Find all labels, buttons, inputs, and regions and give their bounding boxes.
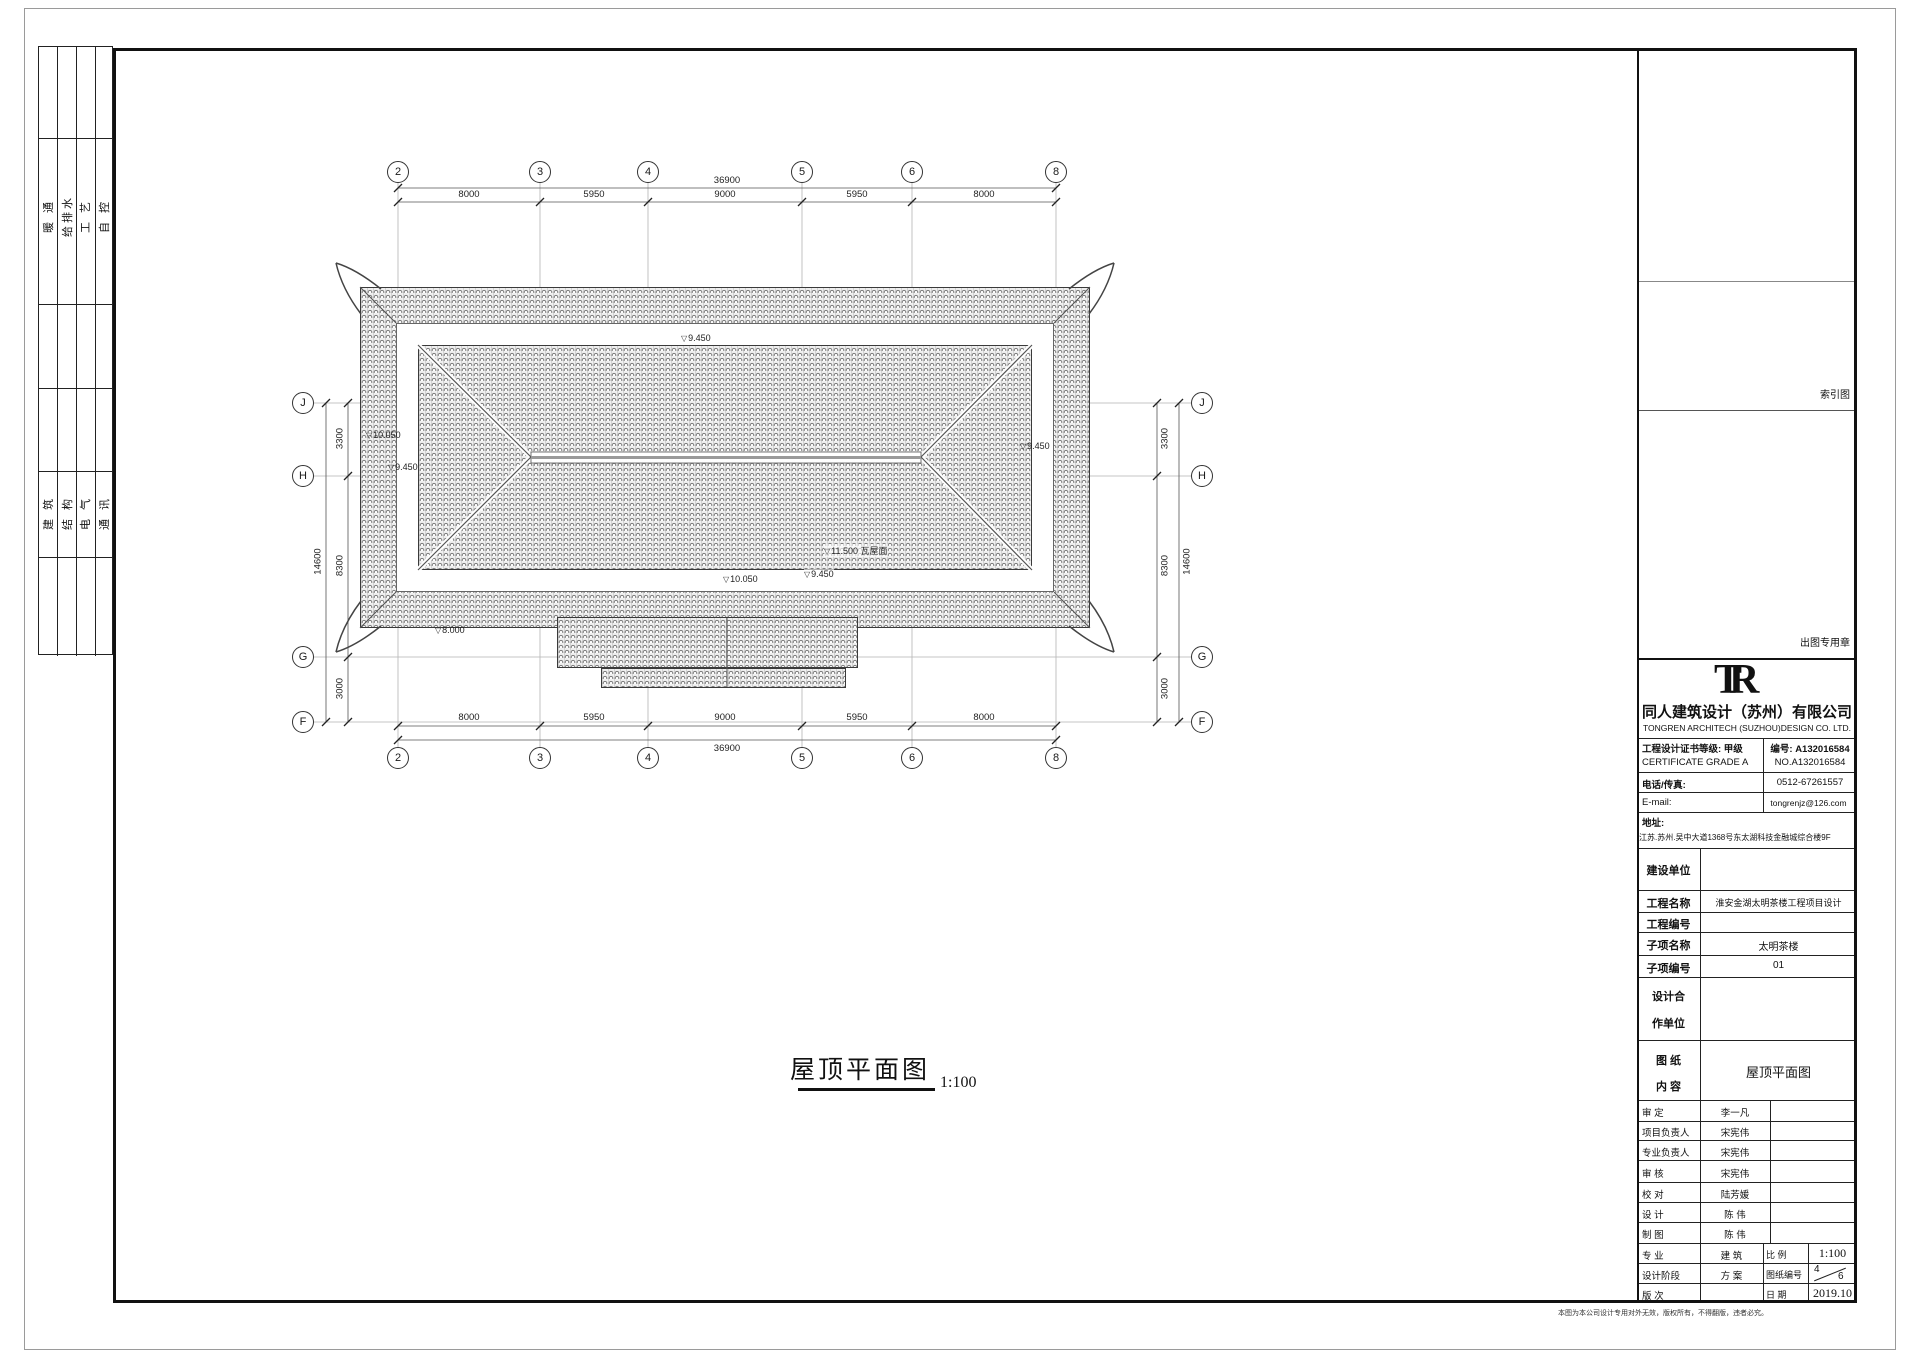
dim-right-1: 3300 [1160,409,1171,469]
dim-left-2: 8300 [335,536,346,596]
axis-bubble-8-bottom: 8 [1045,747,1067,769]
axis-bubble-H-right: H [1191,465,1213,487]
discipline-label-arch: 建 筑 [40,496,56,530]
binding-strip-table [38,46,113,655]
discipline-label-controls: 自 控 [96,199,112,233]
axis-bubble-G-right: G [1191,646,1213,668]
discipline-label-telecom: 通 讯 [96,496,112,530]
elevation-triangle-icon: ▽ [366,431,372,440]
elevation-right: ▽9.450 [1020,441,1050,451]
dim-right-total: 14600 [1182,532,1193,592]
elevation-triangle-icon: ▽ [824,547,830,556]
elevation-porch: ▽8.000 [435,625,465,635]
axis-bubble-F-right: F [1191,711,1213,733]
dim-left-total: 14600 [313,532,324,592]
dim-right-2: 8300 [1160,536,1171,596]
elevation-triangle-icon: ▽ [388,463,394,472]
axis-bubble-5-bottom: 5 [791,747,813,769]
axis-bubble-3-top: 3 [529,161,551,183]
elevation-bottom-center: ▽10.050 [723,574,758,584]
axis-bubble-2-top: 2 [387,161,409,183]
company-logo: TR [1714,656,1746,704]
discipline-label-struct: 结 构 [59,496,75,530]
axis-bubble-3-bottom: 3 [529,747,551,769]
discipline-label-plumbing: 给排水 [59,195,75,237]
dim-top-3: 9000 [695,189,755,200]
elevation-triangle-icon: ▽ [804,570,810,579]
elevation-triangle-icon: ▽ [681,334,687,343]
sheet-main-frame [113,48,1857,1303]
axis-bubble-6-bottom: 6 [901,747,923,769]
elevation-left-lower: ▽9.450 [388,462,418,472]
dim-bottom-1: 8000 [439,712,499,723]
axis-bubble-4-top: 4 [637,161,659,183]
dim-left-1: 3300 [335,409,346,469]
dim-right-3: 3000 [1160,659,1171,719]
dim-bottom-5: 8000 [954,712,1014,723]
dim-bottom-3: 9000 [695,712,755,723]
axis-bubble-8-top: 8 [1045,161,1067,183]
elevation-triangle-icon: ▽ [723,575,729,584]
copyright-note: 本图为本公司设计专用对外无效，版权所有，不得翻版，违者必究。 [1558,1308,1768,1318]
dim-top-1: 8000 [439,189,499,200]
elevation-ridge: ▽11.500 瓦屋面 [824,544,888,557]
discipline-label-process: 工 艺 [77,199,93,233]
axis-bubble-5-top: 5 [791,161,813,183]
elevation-bottom-right: ▽9.450 [804,569,834,579]
axis-bubble-J-left: J [292,392,314,414]
axis-bubble-4-bottom: 4 [637,747,659,769]
axis-bubble-H-left: H [292,465,314,487]
axis-bubble-6-top: 6 [901,161,923,183]
elevation-left-upper: ▽10.050 [366,430,401,440]
axis-bubble-2-bottom: 2 [387,747,409,769]
elevation-triangle-icon: ▽ [435,626,441,635]
elevation-triangle-icon: ▽ [1020,442,1026,451]
company-name-cn: 同人建筑设计（苏州）有限公司 [1641,701,1853,722]
dim-bottom-4: 5950 [827,712,887,723]
company-name-en: TONGREN ARCHITECH (SUZHOU)DESIGN CO. LTD… [1639,723,1855,733]
axis-bubble-J-right: J [1191,392,1213,414]
discipline-label-elec: 电 气 [77,496,93,530]
dim-bottom-2: 5950 [564,712,624,723]
dim-top-5: 8000 [954,189,1014,200]
dim-bottom-total: 36900 [697,743,757,754]
dim-top-total: 36900 [697,175,757,186]
dim-top-4: 5950 [827,189,887,200]
elevation-top: ▽9.450 [681,333,711,343]
drawing-sheet: 暖 通 给排水 工 艺 自 控 建 筑 结 构 电 气 通 讯 [0,0,1920,1358]
discipline-label-hvac: 暖 通 [40,199,56,233]
dim-top-2: 5950 [564,189,624,200]
company-box [1637,658,1857,1303]
dim-left-3: 3000 [335,659,346,719]
axis-bubble-F-left: F [292,711,314,733]
axis-bubble-G-left: G [292,646,314,668]
